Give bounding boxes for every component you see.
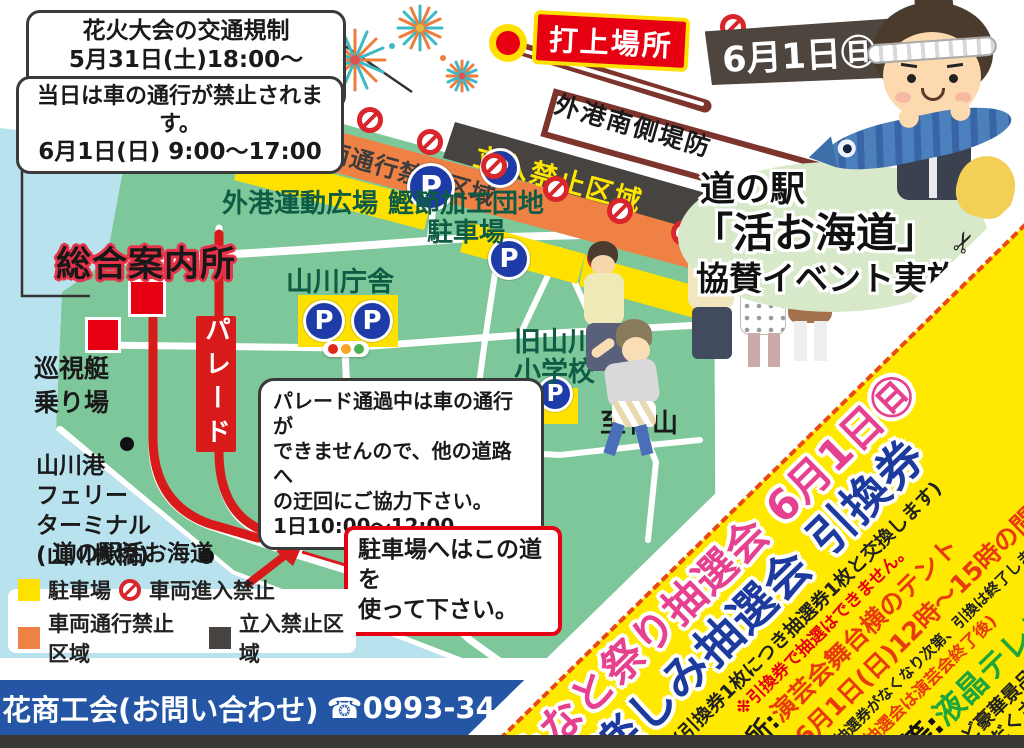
- map-legend: 駐車場 車両進入禁止 車両通行禁止区域 立入禁止区域: [8, 589, 356, 653]
- parking-icon: P: [303, 300, 345, 342]
- parade-banner: パレード: [196, 316, 236, 452]
- regulation2-line2: 6月1日(日) 9:00〜17:00: [25, 138, 335, 167]
- flyer-canvas: 車両通行禁止区域 立入禁止区域 外港南側堤防: [0, 0, 1024, 748]
- legend-keepout-label: 立入禁止区域: [239, 608, 346, 668]
- boy-with-fish-illustration: [845, 0, 1023, 240]
- katsuobushi-line2: 駐車場: [388, 219, 544, 248]
- legend-keepout-swatch: [209, 627, 231, 649]
- office-label: 山川庁舎: [286, 268, 394, 298]
- no-entry-icon: [543, 176, 569, 202]
- legend-vehicle-ban-swatch: [18, 627, 40, 649]
- regulation-title: 花火大会の交通規制: [35, 17, 337, 46]
- no-entry-icon: [119, 579, 141, 601]
- regulation2-line1: 当日は車の通行が禁止されます。: [25, 83, 335, 138]
- no-entry-icon: [417, 129, 443, 155]
- parking-route-box: 駐車場へはこの道を 使って下さい。: [344, 526, 562, 636]
- parking-letter: P: [314, 306, 333, 336]
- parade-notice-box: パレード通過中は車の通行が できませんので、他の道路へ の迂回にご協力下さい。 …: [258, 378, 544, 550]
- sports-plaza-label: 外港運動広場: [222, 190, 378, 219]
- no-entry-icon: [481, 153, 507, 179]
- parking-letter: P: [499, 244, 518, 274]
- event-title-line3: 協賛イベント実施: [696, 262, 960, 297]
- legend-parking-swatch: [18, 579, 40, 601]
- michinoeki-label: 道の駅活お海道: [52, 542, 213, 567]
- info-center-label: 総合案内所: [56, 236, 236, 287]
- no-entry-icon: [357, 107, 383, 133]
- launch-point: [496, 31, 520, 55]
- patrol-boat-label: 巡視艇 乗り場: [34, 352, 109, 420]
- legend-no-entry-label: 車両進入禁止: [149, 575, 275, 605]
- legend-vehicle-ban-label: 車両通行禁止区域: [48, 608, 191, 668]
- parking-letter: P: [362, 306, 381, 336]
- launch-site-label: 打上場所: [532, 10, 691, 72]
- katsuobushi-line1: 鰹節加工団地: [388, 190, 544, 219]
- regulation-box-2: 当日は車の通行が禁止されます。 6月1日(日) 9:00〜17:00: [16, 76, 344, 174]
- contact-org: 花商工会(お問い合わせ): [2, 687, 319, 729]
- katsuobushi-parking-label: 鰹節加工団地 駐車場: [388, 190, 544, 247]
- legend-parking-label: 駐車場: [48, 575, 111, 605]
- info-center-marker: [88, 320, 118, 350]
- bottom-dark-bar: [0, 735, 1024, 748]
- traffic-light-icon: [323, 341, 369, 357]
- parking-icon: P: [351, 300, 393, 342]
- ferry-terminal-dot: [120, 437, 134, 451]
- event-title-line1: 道の駅: [700, 172, 805, 209]
